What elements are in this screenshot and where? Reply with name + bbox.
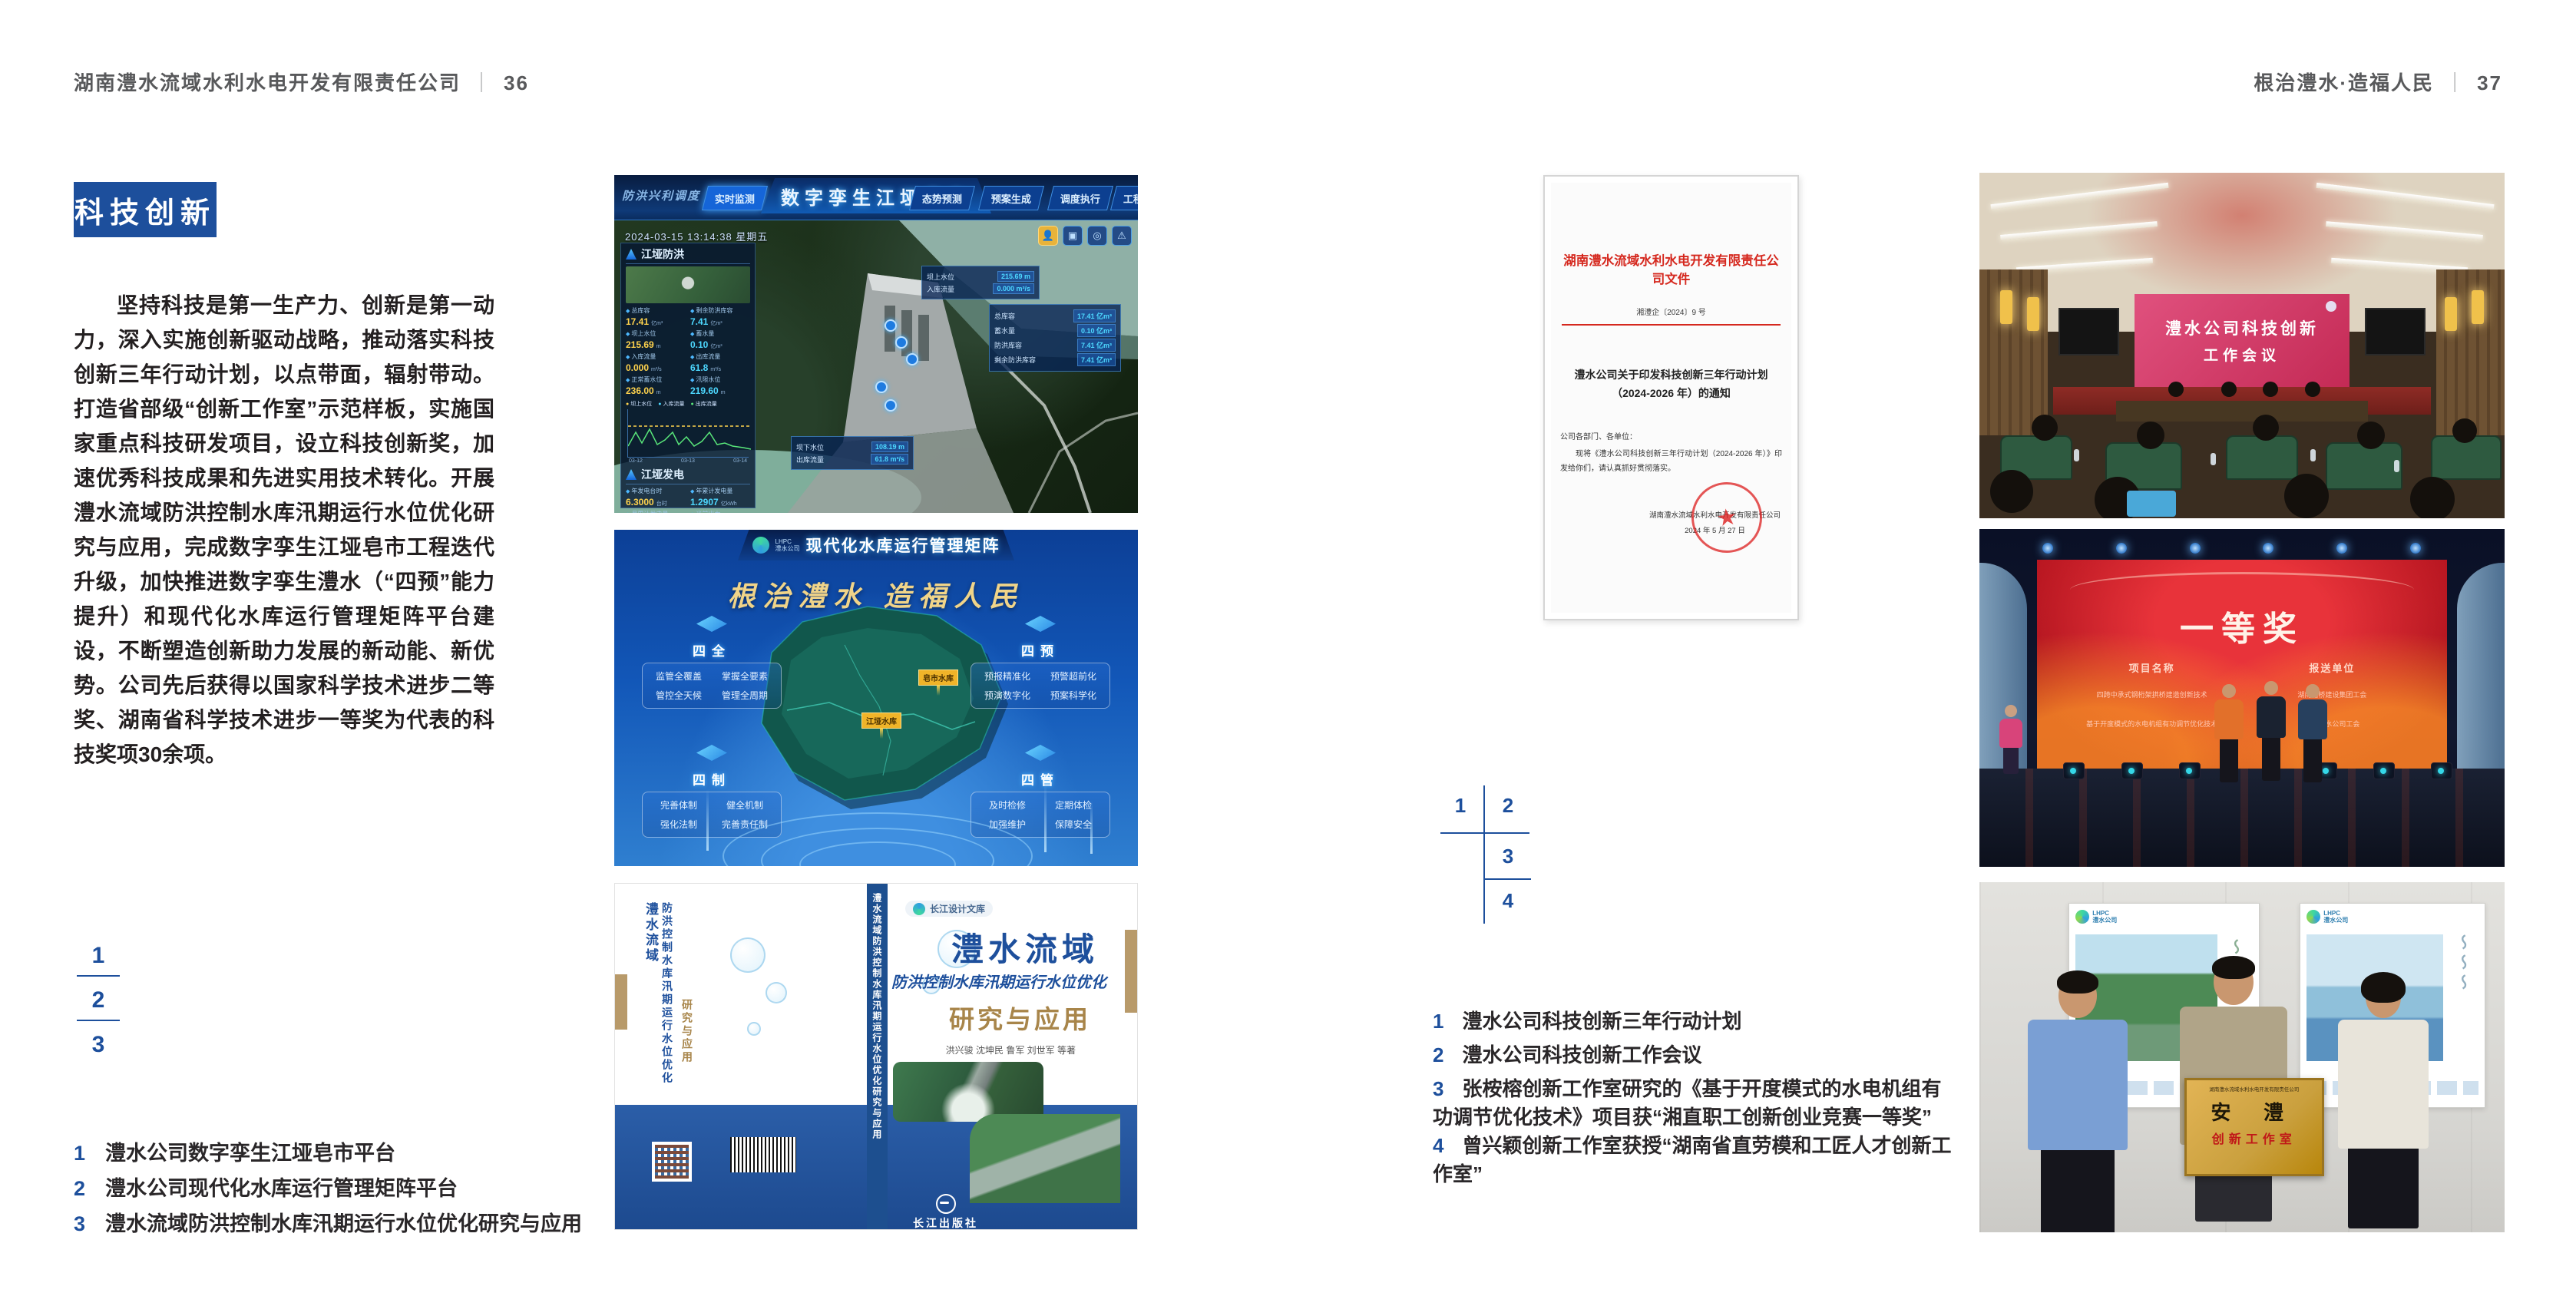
caption-number: 2 <box>1433 1043 1443 1066</box>
panel-icon <box>696 616 727 639</box>
stat-item: 年发电台时6.3000台时 <box>626 487 686 509</box>
award-title: 一等奖 <box>2037 601 2447 650</box>
book-subtitle2: 研究与应用 <box>949 999 1091 1036</box>
layers-icon[interactable]: ▣ <box>1063 226 1083 246</box>
wall-lamp <box>2445 297 2457 331</box>
index-divider-vertical <box>1483 785 1485 924</box>
info-row: 剩余防洪库容7.41 亿m³ <box>994 353 1116 366</box>
stage-light-fixture <box>2431 762 2452 779</box>
caption-text: 澧水公司科技创新三年行动计划 <box>1462 1010 1741 1033</box>
awardee-head <box>2306 684 2320 698</box>
stat-item: 汛限水位219.60m <box>690 375 750 398</box>
orange-jacket <box>2214 699 2244 739</box>
publisher-name: 长江出版社 <box>913 1215 978 1230</box>
audience-head <box>2137 422 2164 449</box>
water-bottle <box>2211 453 2216 465</box>
water-bottle <box>2394 460 2399 472</box>
poster-lhpc-logo: LHPC澧水公司 <box>2075 910 2117 924</box>
caption-number: 2 <box>74 1177 85 1200</box>
map-label-jiangya[interactable]: 江垭水库 <box>861 713 901 729</box>
dark-trousers <box>2348 1149 2419 1228</box>
spine-title: 澧水流域防洪控制水库汛期运行水位优化研究与应用 <box>871 893 884 1146</box>
screen-title-line2: 工作会议 <box>2204 344 2280 365</box>
document-body: 现将《澧水公司科技创新三年行动计划（2024-2026 年）》印发给你们，请认真… <box>1560 447 1782 476</box>
audience-head <box>2410 477 2455 518</box>
stat-item: 入库流量0.000m³/s <box>626 352 686 375</box>
ceiling-glow <box>2074 173 2410 311</box>
gate <box>918 315 929 361</box>
hair <box>2212 956 2255 979</box>
light-pillar <box>1044 783 1047 852</box>
host-skirt <box>2003 748 2019 774</box>
downstream-info-box[interactable]: 坝下水位108.19 m 出库流量61.8 m³/s <box>791 436 914 470</box>
stat-item: 总库容17.41亿m³ <box>626 306 686 329</box>
caption-text: 澧水流域防洪控制水库汛期运行水位优化研究与应用 <box>105 1212 582 1235</box>
bubble-graphic <box>766 982 787 1003</box>
alert-icon[interactable]: ⚠ <box>1112 226 1132 246</box>
dark-suit <box>2257 696 2286 738</box>
awardee-legs <box>2303 739 2322 782</box>
official-seal: ★ <box>1687 478 1767 557</box>
info-row: 蓄水量0.10 亿m³ <box>994 324 1116 337</box>
stage-light-fixture <box>2373 762 2395 779</box>
awardee-legs <box>2220 739 2238 782</box>
book-subtitle: 防洪控制水库汛期运行水位优化 <box>891 970 1106 992</box>
stage-light-fixture <box>2179 762 2201 779</box>
side-wall-left <box>1979 269 2048 435</box>
dais-table <box>2116 401 2368 422</box>
flood-stats-grid: 总库容17.41亿m³ 剩余防洪库容7.41亿m³ 坝上水位215.69m 蓄水… <box>626 306 750 398</box>
column-project: 项目名称 <box>2062 660 2242 675</box>
awardee-navy <box>2294 684 2331 782</box>
stage-spotlight <box>2042 543 2053 554</box>
stat-item: 蓄水量0.10亿m³ <box>690 329 750 352</box>
panel-siyu: 四预 预报精准化预警超前化 预演数字化预案科学化 <box>971 616 1110 709</box>
audience-head <box>2253 415 2279 441</box>
gate-marker[interactable] <box>885 319 897 332</box>
figure-index-2: 2 <box>77 987 120 1013</box>
front-edge-accent <box>1125 930 1137 1013</box>
figure-index-2: 2 <box>1490 794 1526 818</box>
upstream-info-box[interactable]: 坝上水位215.69 m 入库流量0.000 m³/s <box>921 266 1040 299</box>
screen-title-line1: 澧水公司科技创新 <box>2165 316 2319 339</box>
panel-siquan: 四全 监管全覆盖掌握全要素 管控全天候管理全周期 <box>642 616 782 709</box>
info-row: 坝下水位108.19 m <box>796 441 908 452</box>
index-divider <box>77 1020 120 1021</box>
book-spine: 澧水流域防洪控制水库汛期运行水位优化研究与应用 <box>867 884 888 1229</box>
plaque-name: 安 澧 <box>2193 1097 2316 1126</box>
panel-icon <box>696 745 727 768</box>
tv-screen-right <box>2365 308 2426 356</box>
dam-photo <box>893 1062 1043 1122</box>
locate-icon[interactable]: ◎ <box>1087 226 1107 246</box>
section-paragraph: 坚持科技是第一生产力、创新是第一动力，深入实施创新驱动战略，推动落实科技创新三年… <box>74 288 494 772</box>
stat-item: 出库流量61.8m³/s <box>690 352 750 375</box>
document-page: 湖南澧水流域水利水电开发有限责任公司文件 湘澧企〔2024〕9 号 澧水公司关于… <box>1559 177 1784 619</box>
running-head-right: 根治澧水·造福人民｜37 <box>2254 68 2502 96</box>
caption-number: 3 <box>1433 1077 1443 1100</box>
wall-lamp <box>2027 297 2039 331</box>
wall-lamp <box>2000 290 2012 324</box>
host-head <box>2005 705 2017 717</box>
access-road <box>998 359 1090 513</box>
series-badge: 长江设计文库 <box>905 901 993 917</box>
series-name: 长江设计文库 <box>930 902 985 915</box>
chart-legend: 坝上水位 入库流量 出库流量 <box>626 400 750 408</box>
flood-panel-title: 江垭防洪 <box>641 246 684 262</box>
caption-row: 2澧水公司现代化水库运行管理矩阵平台 <box>74 1172 458 1202</box>
dashboard-nav-label: 防洪兴利调度 <box>622 187 700 203</box>
back-title-line1: 澧水流域 <box>641 902 660 964</box>
capacity-info-box[interactable]: 总库容17.41 亿m³ 蓄水量0.10 亿m³ 防洪库容7.41 亿m³ 剩余… <box>989 304 1121 372</box>
stage-floor <box>1979 769 2505 867</box>
page-number-37: 37 <box>2477 71 2502 94</box>
panel-items: 预报精准化预警超前化 预演数字化预案科学化 <box>971 663 1110 709</box>
figure-official-document: 湖南澧水流域水利水电开发有限责任公司文件 湘澧企〔2024〕9 号 澧水公司关于… <box>1543 175 1799 620</box>
plaque-subtitle: 创新工作室 <box>2193 1129 2316 1147</box>
info-row: 总库容17.41 亿m³ <box>994 309 1116 322</box>
publisher-logo: 长江出版社 CHANGJIANG PRESS <box>913 1194 978 1230</box>
figure-book-cover: 澧水流域 防洪控制水库汛期运行水位优化 研究与应用 澧水流域防洪控制水库汛期运行… <box>614 883 1138 1230</box>
panel-siguan: 四管 及时检修定期体检 加强维护保障安全 <box>971 745 1110 838</box>
blue-polo-shirt <box>2028 1020 2128 1150</box>
map-label-zaoshi[interactable]: 皂市水库 <box>918 670 958 686</box>
light-pillar <box>706 789 709 851</box>
power-panel-header: 江垭发电 <box>626 467 750 484</box>
bubble-graphic <box>730 937 766 973</box>
hair <box>2057 970 2098 994</box>
dashboard-datetime: 2024-03-15 13:14:38 星期五 <box>625 229 768 243</box>
stage-spotlight <box>2116 543 2127 554</box>
flood-panel-header: 江垭防洪 <box>626 246 750 264</box>
water-bottle <box>2310 449 2316 461</box>
tab-situation-forecast[interactable]: 态势预测 <box>909 186 975 210</box>
power-stats-grid: 年发电台时6.3000台时 年累计发电量1.2907亿kWh 月累计发电量335… <box>626 487 750 513</box>
access-road <box>1029 413 1138 513</box>
bubble-graphic <box>747 1022 761 1036</box>
stage-spotlight <box>2336 543 2347 554</box>
flow-series <box>628 429 751 449</box>
gate-marker[interactable] <box>906 353 918 365</box>
panel-icon <box>1025 745 1056 768</box>
stat-item: 当前出力0.00MW <box>690 510 750 513</box>
side-wall-right <box>2436 269 2505 435</box>
stat-item: 剩余防洪库容7.41亿m³ <box>690 306 750 329</box>
audience-chair <box>2326 442 2402 490</box>
presenter-suit <box>2253 681 2290 781</box>
gate-marker[interactable] <box>875 381 888 393</box>
figure-index-3: 3 <box>1490 845 1526 868</box>
host-dress <box>1999 719 2022 748</box>
tab-dispatch-execute[interactable]: 调度执行 <box>1047 186 1113 210</box>
power-panel-title: 江垭发电 <box>641 467 684 482</box>
info-row: 坝上水位215.69 m <box>927 271 1034 282</box>
index-divider <box>1483 878 1531 880</box>
document-number: 湘澧企〔2024〕9 号 <box>1559 306 1784 317</box>
info-row: 出库流量61.8 m³/s <box>796 454 908 465</box>
figure-matrix-platform: LHPC 澧水公司 现代化水库运行管理矩阵 根治澧水 造福人民 皂市水库 江垭水… <box>614 530 1138 866</box>
document-red-header: 湖南澧水流域水利水电开发有限责任公司文件 <box>1559 250 1784 287</box>
figure-index-1: 1 <box>77 943 120 969</box>
white-tshirt <box>2338 1020 2429 1149</box>
magazine-spread: 湖南澧水流域水利水电开发有限责任公司｜36 根治澧水·造福人民｜37 科技创新 … <box>0 0 2576 1306</box>
section-badge: 科技创新 <box>74 182 217 237</box>
tab-realtime-monitor[interactable]: 实时监测 <box>702 186 768 210</box>
caption-row: 1澧水公司科技创新三年行动计划 <box>1433 1007 1955 1036</box>
audience-head <box>1990 470 2033 513</box>
back-title-line3: 研究与应用 <box>680 999 695 1064</box>
document-salutation: 公司各部门、各单位： <box>1560 430 1637 441</box>
panel-flag-icon <box>626 469 637 480</box>
back-spine-accent <box>615 974 627 1030</box>
figure-digital-twin-platform: 防洪兴利调度 实时监测 洪水预报 防洪预警 数字孪生江垭皂市 态势预测 预案生成… <box>614 175 1138 513</box>
series-logo-icon <box>913 903 925 915</box>
index-divider <box>77 975 120 977</box>
tissue-box <box>2127 491 2176 517</box>
info-row: 防洪库容7.41 亿m³ <box>994 339 1116 352</box>
caption-number: 4 <box>1433 1134 1443 1157</box>
meeting-screen: 澧水公司科技创新 工作会议 <box>2135 294 2349 388</box>
caption-row: 3澧水流域防洪控制水库汛期运行水位优化研究与应用 <box>74 1207 582 1237</box>
photo-innovation-meeting: 澧水公司科技创新 工作会议 <box>1979 173 2505 518</box>
document-red-rule <box>1562 324 1781 326</box>
stage-light-fixture <box>2121 762 2143 779</box>
dam-thumbnail[interactable] <box>626 266 750 303</box>
info-row: 入库流量0.000 m³/s <box>927 283 1034 294</box>
figure-index-1: 1 <box>1442 794 1479 818</box>
audience-head <box>2284 474 2329 518</box>
caption-number: 1 <box>1433 1010 1443 1033</box>
speaker-silhouette <box>2221 382 2237 397</box>
gate-marker[interactable] <box>895 336 908 349</box>
photo-workshop-plaque: LHPC澧水公司 〜〜〜 LHPC澧水公司 〜〜〜 <box>1979 882 2505 1232</box>
figure-index-3: 3 <box>77 1032 120 1058</box>
qr-pixels <box>655 1145 689 1179</box>
panel-items: 监管全覆盖掌握全要素 管控全天候管理全周期 <box>642 663 782 709</box>
panel-sizhi: 四制 完善体制健全机制 强化法制完善责任制 <box>642 745 782 838</box>
caption-number: 3 <box>74 1212 85 1235</box>
gate-marker[interactable] <box>885 399 897 412</box>
caption-text: 曾兴颖创新工作室获授“湖南省直劳模和工匠人才创新工作室” <box>1433 1134 1951 1185</box>
water-bottle <box>2074 449 2079 461</box>
chart-svg <box>628 409 751 455</box>
lhpc-logo-icon <box>2306 910 2320 924</box>
caption-row: 4曾兴颖创新工作室获授“湖南省直劳模和工匠人才创新工作室” <box>1433 1132 1955 1189</box>
publisher-icon <box>936 1194 956 1214</box>
caption-text: 澧水公司现代化水库运行管理矩阵平台 <box>105 1177 458 1200</box>
innovation-workshop-plaque: 湖南澧水流域水利水电开发有限责任公司 安 澧 创新工作室 <box>2184 1078 2324 1176</box>
qr-code <box>652 1142 692 1182</box>
figure-index-4: 4 <box>1490 889 1526 913</box>
presenter-legs <box>2262 738 2280 781</box>
poster-lhpc-logo: LHPC澧水公司 <box>2306 910 2348 924</box>
stage-spotlight <box>2263 543 2273 554</box>
award-columns: 项目名称 报送单位 <box>2062 660 2422 675</box>
stage-spotlight <box>2190 543 2201 554</box>
lhpc-logo-icon <box>2075 910 2089 924</box>
dark-trousers <box>2041 1150 2115 1232</box>
chart-x-ticks: 03-12 03-13 03-14 <box>626 458 750 464</box>
screen-logo-icon <box>2326 301 2336 312</box>
audience-head <box>2452 418 2477 443</box>
stat-item: 年累计发电量1.2907亿kWh <box>690 487 750 509</box>
stat-item: 月累计发电量3359.21万kWh <box>626 510 686 513</box>
document-title: 澧水公司关于印发科技创新三年行动计划 （2024-2026 年）的通知 <box>1559 365 1784 402</box>
man-blue-polo <box>2016 974 2139 1232</box>
running-head-left: 湖南澧水流域水利水电开发有限责任公司｜36 <box>74 68 529 96</box>
photo-award-ceremony: 一等奖 项目名称 报送单位 四跨中承式钢桁架拱桥建造创新技术 湖南路桥建设集团工… <box>1979 529 2505 867</box>
navy-jacket <box>2298 699 2327 739</box>
panel-icon <box>1025 616 1056 639</box>
caption-row: 1澧水公司数字孪生江垭皂市平台 <box>74 1136 395 1166</box>
stage-light-fixture <box>2063 762 2085 779</box>
woman-white-tee <box>2326 977 2441 1228</box>
audience-chair <box>2226 435 2298 480</box>
caption-row: 2澧水公司科技创新工作会议 <box>1433 1041 1955 1070</box>
light-pillar <box>1090 800 1093 854</box>
plaque-company-line: 湖南澧水流域水利水电开发有限责任公司 <box>2193 1085 2316 1093</box>
column-org: 报送单位 <box>2242 660 2422 675</box>
spread-motto: 根治澧水·造福人民 <box>2254 71 2434 94</box>
caption-text: 张桉榕创新工作室研究的《基于开度模式的水电机组有功调节优化技术》项目获“湘直职工… <box>1433 1077 1941 1129</box>
water-level-chart[interactable] <box>627 409 749 458</box>
caption-text: 澧水公司数字孪生江垭皂市平台 <box>105 1142 395 1165</box>
panel-flag-icon <box>626 249 637 260</box>
tv-screen-left <box>2058 308 2119 356</box>
stat-item: 正常蓄水位236.00m <box>626 375 686 398</box>
gate <box>901 310 912 356</box>
book-title: 澧水流域 <box>951 924 1099 970</box>
hair <box>2361 972 2406 1003</box>
header-divider: ｜ <box>471 71 493 94</box>
user-icon[interactable]: 👤 <box>1038 226 1058 246</box>
flood-data-panel: 江垭防洪 总库容17.41亿m³ 剩余防洪库容7.41亿m³ 坝上水位215.6… <box>620 243 756 508</box>
index-divider <box>1440 832 1529 834</box>
stat-item: 坝上水位215.69m <box>626 329 686 352</box>
host-silhouette <box>1996 705 2026 774</box>
page-number-36: 36 <box>504 71 529 94</box>
company-name: 湖南澧水流域水利水电开发有限责任公司 <box>74 71 461 94</box>
header-divider: ｜ <box>2445 71 2466 94</box>
wall-lamp <box>2472 290 2484 324</box>
book-authors: 洪兴骏 沈坤民 鲁军 刘世军 等著 <box>946 1043 1076 1056</box>
caption-row: 3张桉榕创新工作室研究的《基于开度模式的水电机组有功调节优化技术》项目获“湘直职… <box>1433 1075 1955 1132</box>
presenter-head <box>2264 681 2278 695</box>
caption-number: 1 <box>74 1142 85 1165</box>
barcode <box>730 1137 796 1172</box>
caption-text: 澧水公司科技创新工作会议 <box>1462 1043 1701 1066</box>
powerhouse-photo <box>970 1114 1120 1203</box>
tab-plan-generate[interactable]: 预案生成 <box>978 186 1044 210</box>
poster-calligraphy: 〜〜〜 <box>2452 934 2474 1057</box>
awardee-head <box>2222 684 2236 698</box>
awardee-orange <box>2211 684 2247 782</box>
back-title-line2: 防洪控制水库汛期运行水位优化 <box>660 902 675 1094</box>
stage-spotlight <box>2410 543 2421 554</box>
